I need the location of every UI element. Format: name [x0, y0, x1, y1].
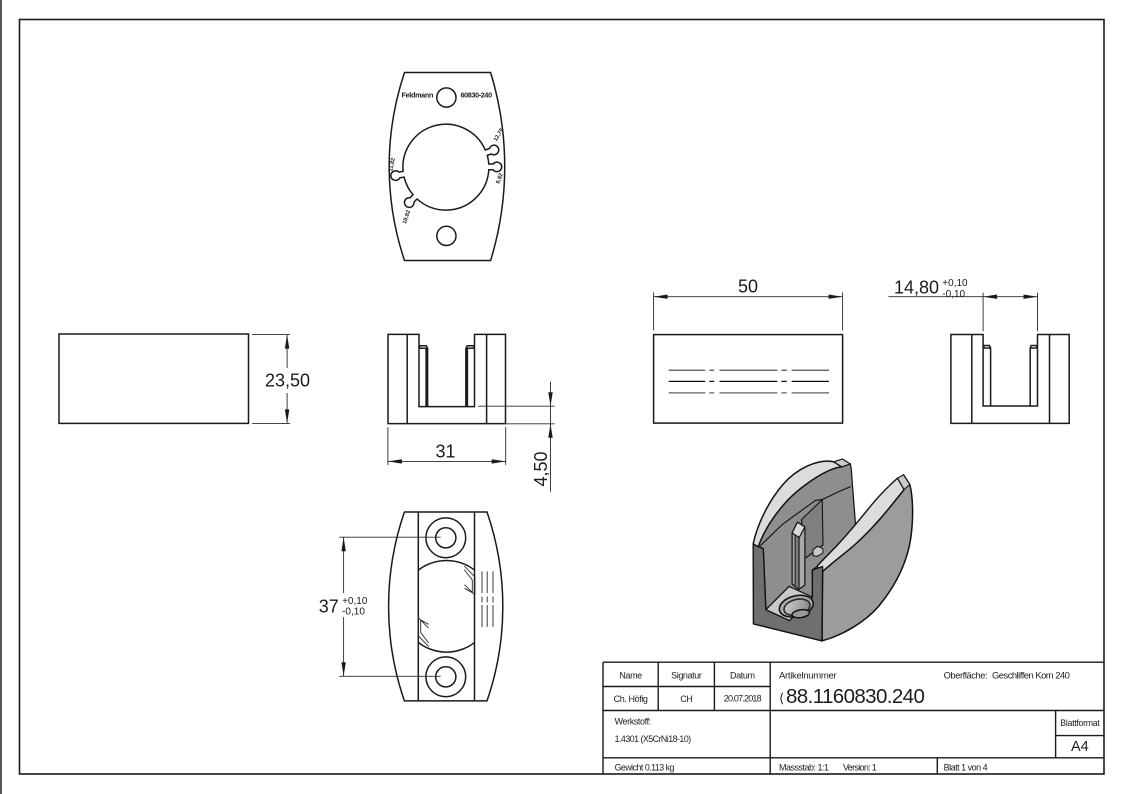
- svg-text:20.07.2018: 20.07.2018: [724, 694, 762, 704]
- svg-text:Geschliffen Korn 240: Geschliffen Korn 240: [992, 669, 1070, 680]
- svg-text:60830-240: 60830-240: [461, 91, 493, 100]
- svg-text:50: 50: [738, 277, 758, 297]
- svg-text:CH: CH: [680, 694, 692, 704]
- svg-text:Signatur: Signatur: [671, 671, 702, 681]
- svg-text:31: 31: [435, 442, 455, 462]
- svg-text:14,80: 14,80: [894, 278, 939, 298]
- svg-text:Datum: Datum: [730, 671, 755, 681]
- svg-text:1.4301 (X5CrNi18-10): 1.4301 (X5CrNi18-10): [615, 734, 692, 744]
- svg-text:Massstab: 1:1: Massstab: 1:1: [779, 763, 829, 773]
- svg-text:Name: Name: [619, 671, 642, 681]
- svg-text:Version: 1: Version: 1: [843, 763, 877, 773]
- svg-text:37: 37: [319, 596, 339, 616]
- svg-text:23,50: 23,50: [265, 371, 310, 391]
- svg-text:Artikelnummer: Artikelnummer: [779, 670, 836, 681]
- svg-text:Werkstoff:: Werkstoff:: [615, 717, 651, 727]
- svg-text:A4: A4: [1071, 739, 1089, 755]
- svg-text:Oberfläche:: Oberfläche:: [944, 670, 988, 680]
- svg-text:4,50: 4,50: [531, 451, 551, 486]
- svg-text:Blattformat: Blattformat: [1060, 718, 1100, 728]
- svg-text:Ch. Höfig: Ch. Höfig: [614, 694, 648, 704]
- svg-text:+0,10: +0,10: [942, 278, 968, 289]
- svg-text:-0,10: -0,10: [342, 607, 365, 618]
- svg-text:⟨: ⟨: [779, 691, 784, 706]
- svg-text:+0,10: +0,10: [342, 596, 368, 607]
- svg-text:Feldmann: Feldmann: [402, 91, 434, 100]
- svg-text:Blatt 1 von 4: Blatt 1 von 4: [944, 763, 988, 773]
- svg-text:-0,10: -0,10: [942, 289, 965, 300]
- svg-text:88.1160830.240: 88.1160830.240: [786, 685, 924, 708]
- svg-text:Gewicht 0.113 kg: Gewicht 0.113 kg: [615, 762, 675, 772]
